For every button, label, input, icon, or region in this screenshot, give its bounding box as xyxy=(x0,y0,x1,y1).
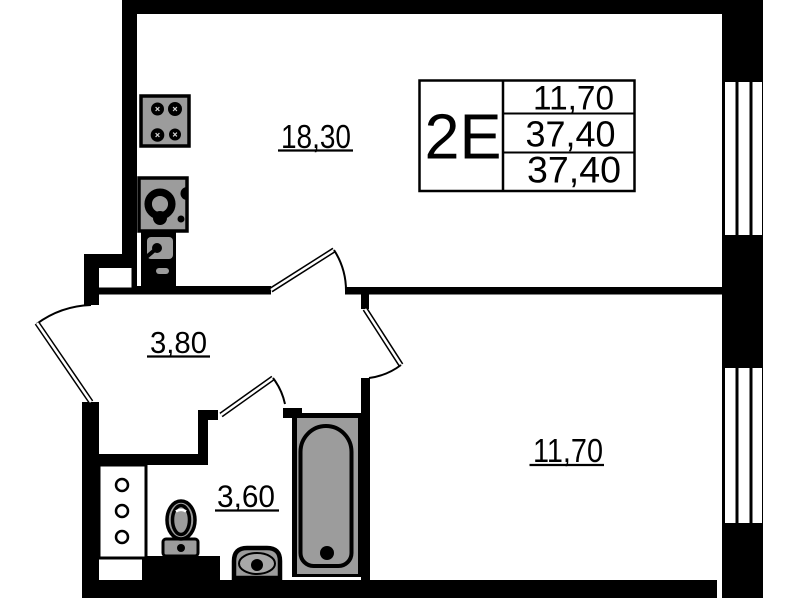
svg-text:3,60: 3,60 xyxy=(217,478,275,514)
svg-text:37,40: 37,40 xyxy=(527,149,621,191)
svg-text:2E: 2E xyxy=(425,101,502,173)
svg-text:3,80: 3,80 xyxy=(150,326,207,360)
svg-text:11,70: 11,70 xyxy=(533,80,614,118)
